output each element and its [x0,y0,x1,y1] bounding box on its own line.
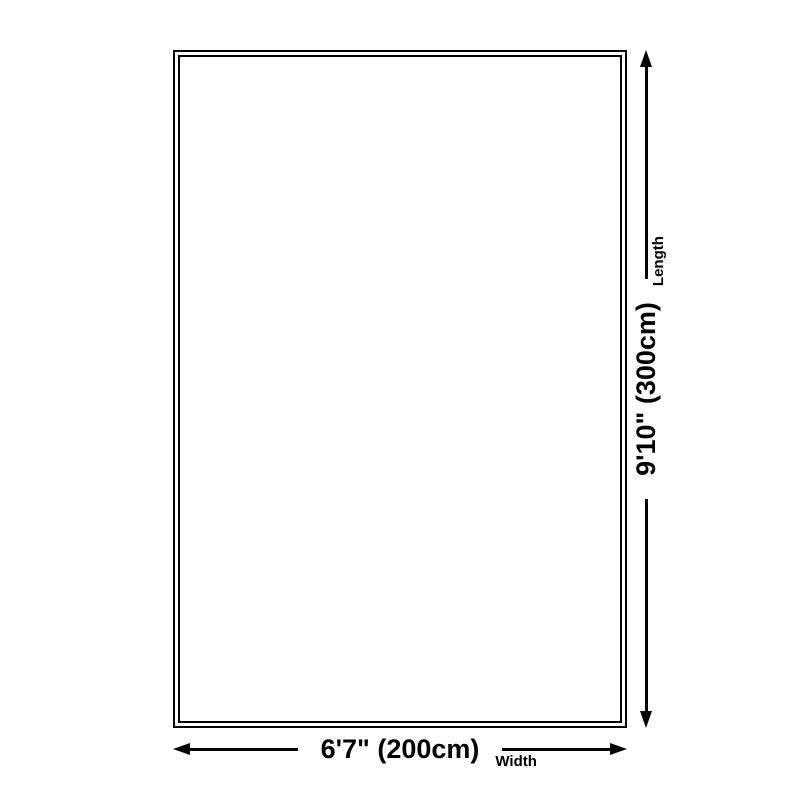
width-arrow-line-right: Width [502,748,610,751]
right-arrowhead-icon [610,743,627,755]
length-arrow-line-bottom [645,499,648,711]
left-arrowhead-icon [173,743,190,755]
length-value-label: 9'10" (300cm) [633,279,660,499]
product-outline-rect-inner [178,55,622,723]
length-dimension-arrow: 9'10" (300cm) Length [633,50,659,728]
down-arrowhead-icon [640,711,652,728]
width-value-label: 6'7" (200cm) [298,736,503,763]
length-arrow-line-top: Length [645,67,648,279]
width-arrow-line-left [190,748,298,751]
width-dimension-arrow: 6'7" (200cm) Width [173,736,627,762]
up-arrowhead-icon [640,50,652,67]
width-caption: Width [495,754,537,769]
size-diagram: 6'7" (200cm) Width 9'10" (300cm) Length [0,0,800,800]
product-outline-rect [173,50,627,728]
length-caption: Length [651,236,666,286]
